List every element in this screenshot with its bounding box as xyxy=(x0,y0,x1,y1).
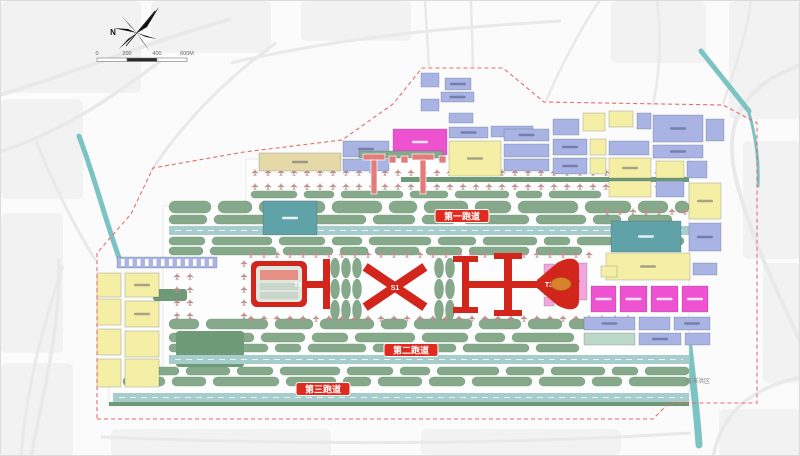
terminal-t4-hall xyxy=(260,270,298,280)
runway-1-badge: 第一跑道 xyxy=(435,210,489,223)
runway-1-label: 第一跑道 xyxy=(444,211,480,222)
runway-2-badge: 第二跑道 xyxy=(384,344,438,357)
scale-tick-400: 400 xyxy=(152,51,161,57)
flood-area-label: 蓄滞洪区 xyxy=(686,377,710,385)
terminal-t4-concourse xyxy=(260,283,298,290)
terminal-t4-label: T4 xyxy=(294,282,302,289)
runway-3-badge: 第三跑道 xyxy=(296,383,350,396)
terminal-t3-fuselage xyxy=(469,281,539,288)
airport-master-plan-map: T4 S1 T3 第一跑道 xyxy=(0,0,800,456)
transport-hub-oval xyxy=(551,278,571,291)
scale-tick-0: 0 xyxy=(95,51,98,57)
terminal-t4-pier xyxy=(307,281,325,288)
scale-tick-600: 600M xyxy=(180,51,194,57)
north-arrow-label: N xyxy=(110,28,116,37)
terminal-t3-pier xyxy=(462,259,469,309)
scale-tick-200: 200 xyxy=(122,51,131,57)
terminal-t4-concourse xyxy=(260,292,298,299)
terminal-s1-label: S1 xyxy=(391,285,400,292)
map-canvas: T4 S1 T3 第一跑道 xyxy=(1,1,800,456)
runway-3-label: 第三跑道 xyxy=(305,384,341,395)
terminal-t4-pier-bar xyxy=(323,259,330,309)
runway-2-label: 第二跑道 xyxy=(393,345,429,356)
